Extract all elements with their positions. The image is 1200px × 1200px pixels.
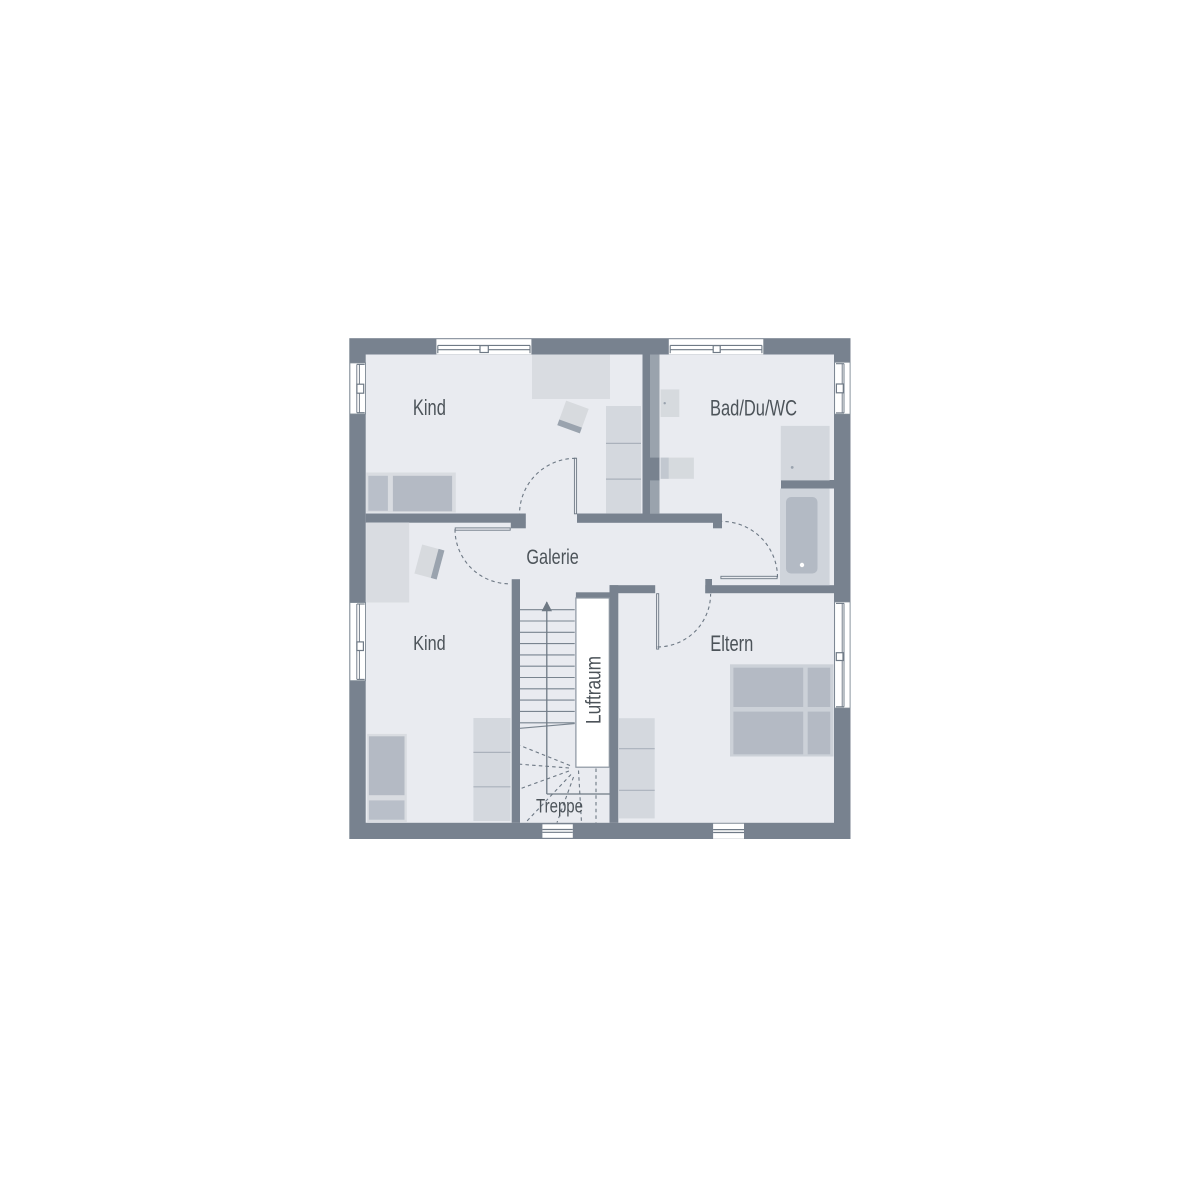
svg-text:Treppe: Treppe: [536, 796, 583, 818]
svg-text:Kind: Kind: [413, 395, 446, 420]
svg-text:Bad/Du/WC: Bad/Du/WC: [710, 396, 797, 421]
svg-text:Eltern: Eltern: [710, 631, 753, 656]
svg-text:Galerie: Galerie: [526, 545, 579, 569]
svg-text:Kind: Kind: [413, 632, 446, 655]
svg-text:Luftraum: Luftraum: [582, 656, 605, 724]
